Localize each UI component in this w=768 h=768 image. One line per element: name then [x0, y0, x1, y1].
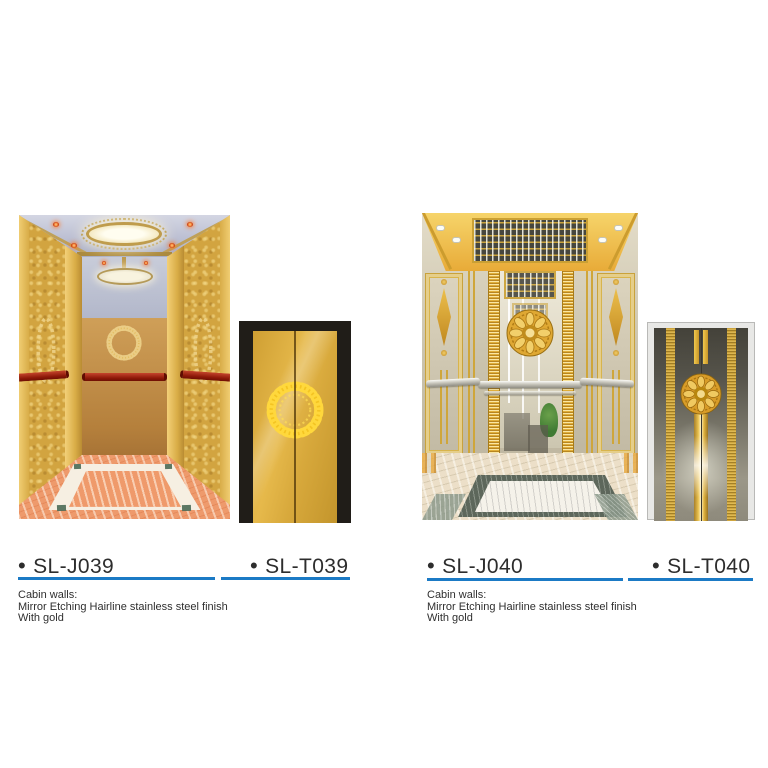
spotlight-reflection — [144, 261, 148, 265]
code-underline — [427, 578, 623, 581]
cabin2-ceiling — [422, 213, 638, 271]
cabin1-back-wall — [82, 255, 167, 455]
product-code-sl-t039: •SL-T039 — [250, 553, 348, 579]
bullet-icon: • — [427, 553, 435, 578]
product-code-sl-j040: •SL-J040 — [427, 553, 523, 579]
code-underline — [628, 578, 753, 581]
gold-line — [473, 268, 475, 458]
description-040: Cabin walls: Mirror Etching Hairline sta… — [427, 590, 637, 625]
code-text: SL-T040 — [667, 555, 750, 578]
door2-panels — [654, 328, 748, 521]
door-photo-sl-t039 — [239, 321, 351, 523]
handrail-left — [426, 378, 480, 388]
handrail-back — [478, 381, 582, 388]
bullet-icon: • — [652, 553, 660, 578]
description-line: Cabin walls: — [427, 590, 637, 602]
red-spotlight — [71, 243, 77, 248]
slat-light-panel — [472, 218, 588, 263]
diamond-ornament — [437, 288, 451, 346]
medallion-ornament — [506, 309, 554, 357]
gold-top-bar — [694, 330, 699, 364]
gold-line — [591, 268, 593, 458]
wall-strip — [19, 215, 29, 505]
white-spotlight — [614, 225, 623, 231]
ornament-dot — [613, 350, 619, 356]
ceiling-back-trim — [77, 252, 172, 256]
white-spotlight — [598, 237, 607, 243]
white-spotlight — [452, 237, 461, 243]
medallion-ornament — [680, 373, 722, 415]
catalog-page: •SL-J039 •SL-T039 Cabin walls: Mirror Et… — [0, 0, 768, 768]
cabin1-right-wall — [167, 215, 230, 505]
gold-top-bar — [703, 330, 708, 364]
floor-accent-square — [182, 505, 191, 511]
door-center-split — [294, 331, 296, 523]
wall-strip — [220, 215, 230, 505]
floor-accent-square — [74, 464, 81, 469]
side-ornament-panel-right — [597, 273, 635, 455]
ceiling-reflection-panel — [504, 271, 556, 299]
side-ornament-panel-left — [425, 273, 463, 455]
door-center-split — [701, 328, 702, 521]
product-code-sl-t040: •SL-T040 — [652, 553, 750, 579]
wreath-ornament — [102, 321, 146, 365]
door1-gold-panels — [253, 331, 337, 523]
door-photo-sl-t040 — [647, 322, 755, 520]
pillar-floor-reflection — [422, 453, 436, 473]
cabin1-back-panel — [82, 318, 167, 455]
bullet-icon: • — [18, 553, 26, 578]
ornament-dot — [441, 279, 447, 285]
gold-texture-stripe — [666, 328, 675, 521]
cabin2-floor — [422, 453, 638, 520]
handrail-back — [82, 373, 167, 381]
ornament-dot — [613, 279, 619, 285]
red-spotlight — [169, 243, 175, 248]
oval-ceiling-light — [86, 222, 162, 246]
floor-accent-square — [165, 464, 172, 469]
description-line: Cabin walls: — [18, 590, 228, 602]
cabin-photo-sl-j040 — [422, 213, 638, 520]
handrail-right — [580, 378, 634, 388]
floor-accent-square — [57, 505, 66, 511]
product-code-sl-j039: •SL-J039 — [18, 553, 114, 579]
red-spotlight — [53, 222, 59, 227]
ceiling-light-reflection — [97, 268, 153, 285]
ornament-dot — [441, 350, 447, 356]
bullet-icon: • — [250, 553, 258, 578]
pillar-floor-reflection — [624, 453, 638, 473]
code-text: SL-T039 — [265, 555, 348, 578]
gold-texture-stripe — [727, 328, 736, 521]
red-spotlight — [187, 222, 193, 227]
gold-pillar — [488, 261, 500, 453]
cabin-photo-sl-j039 — [19, 215, 230, 519]
code-underline — [221, 577, 350, 580]
description-line: With gold — [427, 613, 637, 625]
code-text: SL-J039 — [33, 555, 114, 578]
code-text: SL-J040 — [442, 555, 523, 578]
diamond-ornament — [609, 288, 623, 346]
handrail-back-lower — [484, 391, 576, 395]
gold-line — [468, 268, 470, 458]
description-line: With gold — [18, 613, 228, 625]
white-spotlight — [436, 225, 445, 231]
code-underline — [18, 577, 215, 580]
spotlight-reflection — [102, 261, 106, 265]
furniture-reflection — [504, 413, 530, 451]
cabin1-back-mirror — [82, 255, 167, 318]
description-039: Cabin walls: Mirror Etching Hairline sta… — [18, 590, 228, 625]
gold-pillar — [562, 261, 574, 453]
cabin1-left-wall — [19, 215, 82, 505]
gold-line — [586, 268, 588, 458]
